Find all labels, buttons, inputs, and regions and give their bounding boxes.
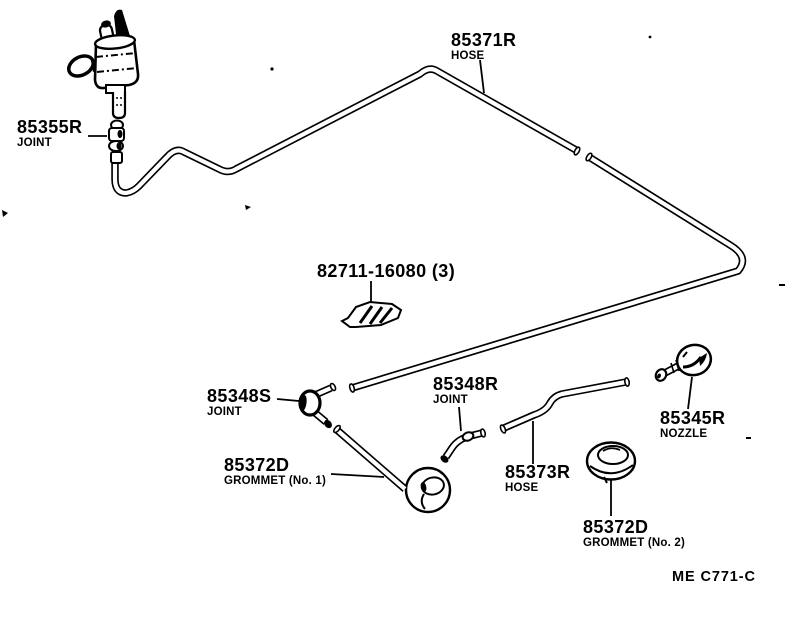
- part-caption: HOSE: [505, 482, 570, 495]
- joint-85348s-drawing: [299, 383, 336, 430]
- joint-85355r-drawing: [109, 121, 124, 164]
- part-caption: JOINT: [433, 394, 498, 407]
- part-caption: JOINT: [207, 406, 271, 419]
- hose-85371r-drawing: [115, 69, 743, 393]
- part-caption: NOZZLE: [660, 428, 725, 441]
- part-number: 85355R: [17, 118, 82, 137]
- part-caption: JOINT: [17, 137, 82, 150]
- part-number: 82711-16080 (3): [317, 262, 455, 281]
- washer-pump-drawing: [65, 10, 138, 118]
- part-number: 85345R: [660, 409, 725, 428]
- part-caption: GROMMET (No. 2): [583, 537, 685, 550]
- hose-grommet1-drawing: [333, 424, 450, 512]
- part-label-85372d-no1: 85372D GROMMET (No. 1): [224, 456, 326, 488]
- joint-85348r-drawing: [439, 429, 486, 465]
- part-number: 85372D: [224, 456, 326, 475]
- part-label-82711-16080: 82711-16080 (3): [317, 262, 455, 281]
- grommet2-drawing: [587, 443, 635, 484]
- part-label-85345r: 85345R NOZZLE: [660, 409, 725, 441]
- part-number: 85373R: [505, 463, 570, 482]
- part-caption: GROMMET (No. 1): [224, 475, 326, 488]
- part-label-85348r: 85348R JOINT: [433, 375, 498, 407]
- part-label-85348s: 85348S JOINT: [207, 387, 271, 419]
- nozzle-85345r-drawing: [654, 341, 715, 383]
- part-number: 85348R: [433, 375, 498, 394]
- part-label-85355r: 85355R JOINT: [17, 118, 82, 150]
- part-caption: HOSE: [451, 50, 516, 63]
- part-label-85372d-no2: 85372D GROMMET (No. 2): [583, 518, 685, 550]
- clip-82711-drawing: [342, 302, 401, 327]
- part-label-85371r: 85371R HOSE: [451, 31, 516, 63]
- part-number: 85371R: [451, 31, 516, 50]
- part-number: 85372D: [583, 518, 685, 537]
- parts-diagram-page: 85371R HOSE 85355R JOINT 82711-16080 (3)…: [0, 0, 800, 622]
- hose-85373r-drawing: [499, 377, 629, 433]
- drawing-code: ME C771-C: [672, 569, 756, 585]
- part-number: 85348S: [207, 387, 271, 406]
- part-label-85373r: 85373R HOSE: [505, 463, 570, 495]
